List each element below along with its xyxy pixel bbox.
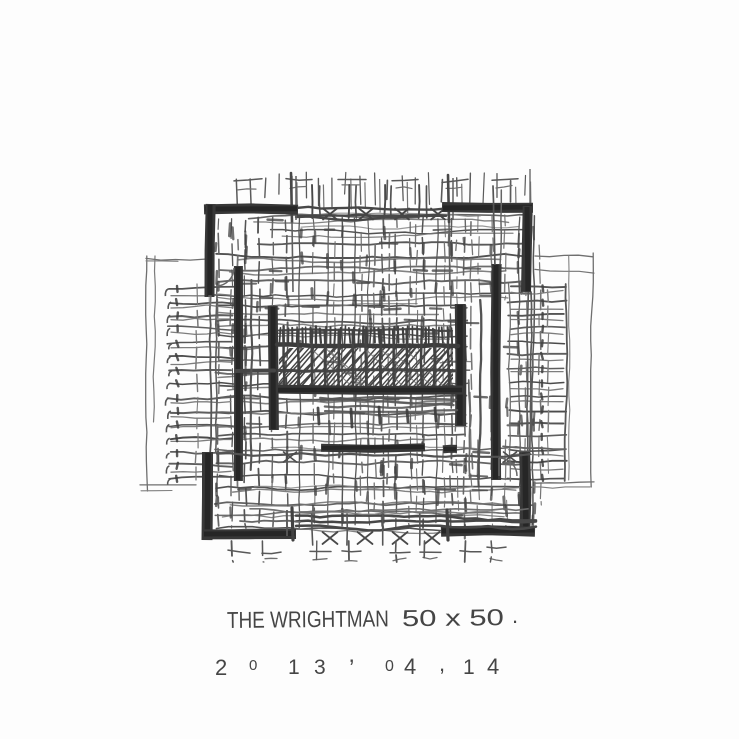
svg-text:4: 4 [404, 654, 416, 679]
svg-text:3: 3 [314, 656, 326, 679]
svg-text:1: 1 [463, 656, 475, 679]
svg-text:4: 4 [487, 654, 499, 679]
svg-text:’: ’ [349, 655, 354, 682]
svg-text:50 x 50: 50 x 50 [402, 604, 504, 631]
svg-text:0: 0 [385, 658, 394, 675]
svg-text:0: 0 [249, 657, 257, 674]
svg-text:2: 2 [215, 655, 227, 680]
svg-text:.: . [512, 603, 518, 628]
svg-text:1: 1 [288, 656, 300, 679]
svg-text:THE WRIGHTMAN: THE WRIGHTMAN [227, 605, 389, 633]
svg-text:,: , [439, 651, 445, 676]
